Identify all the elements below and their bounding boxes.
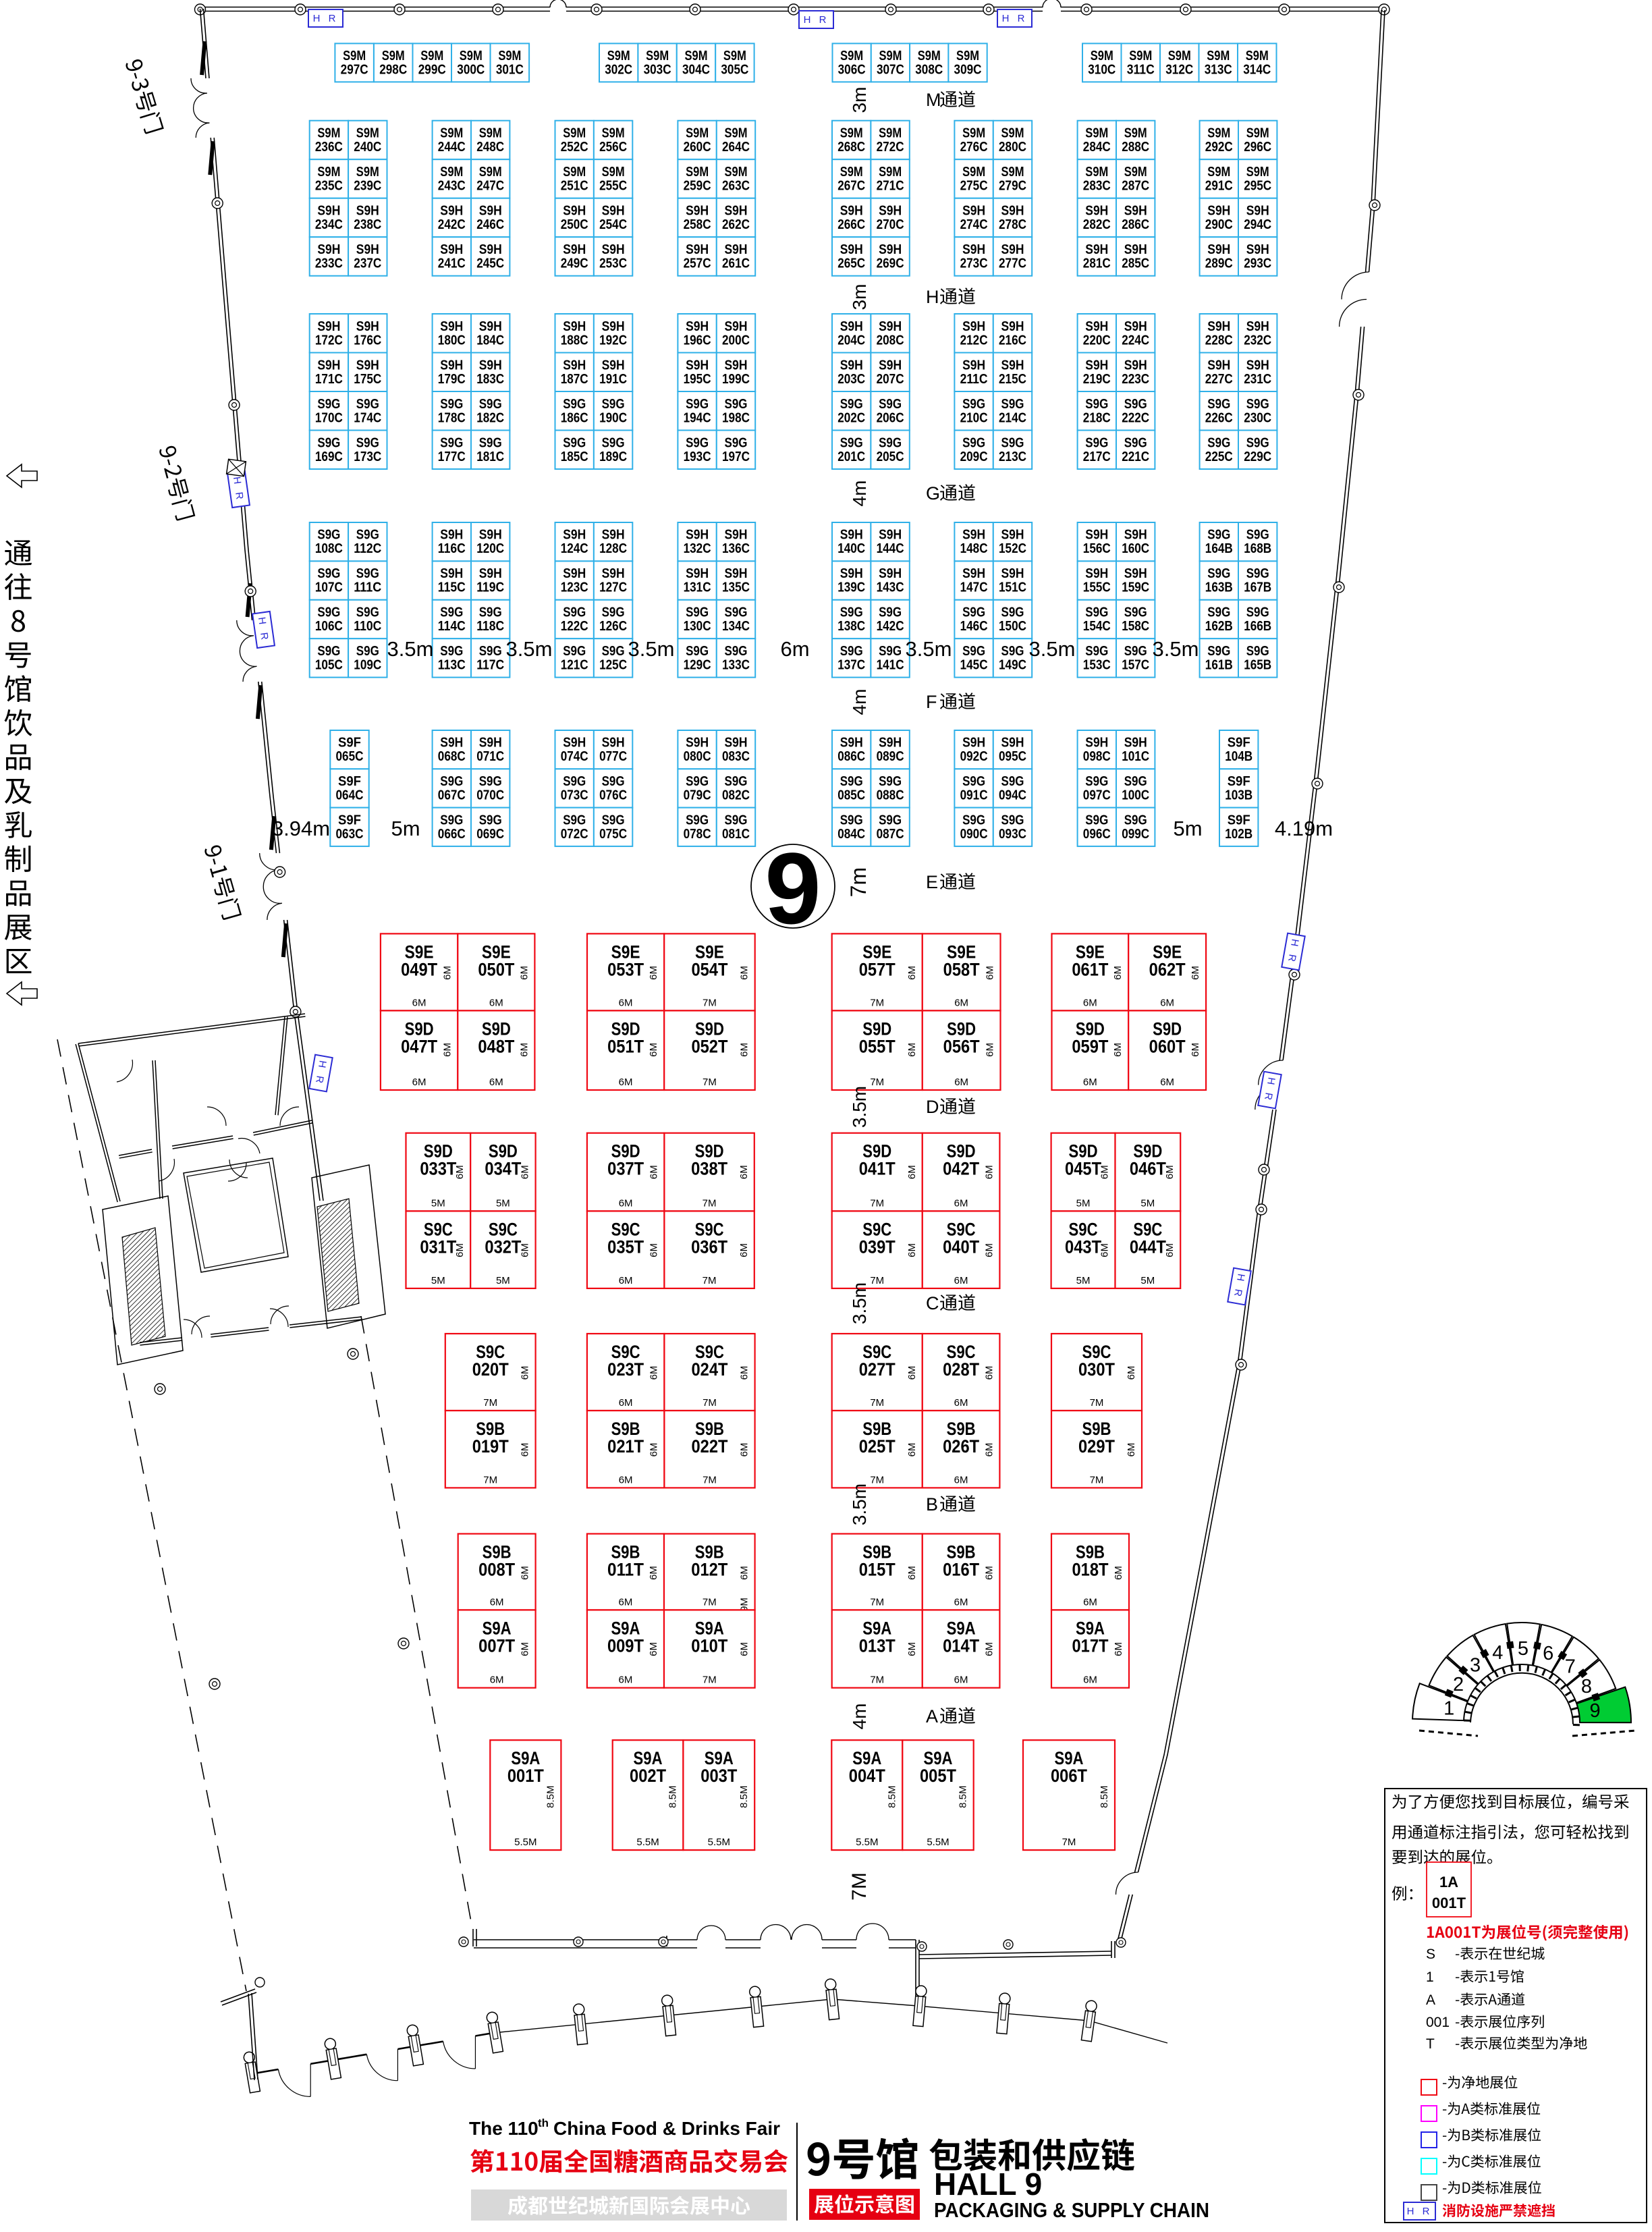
svg-text:233C: 233C: [315, 256, 343, 271]
svg-text:S9M: S9M: [646, 49, 669, 63]
svg-text:7M: 7M: [1090, 1474, 1104, 1486]
svg-text:7M: 7M: [870, 997, 884, 1008]
svg-text:056T: 056T: [943, 1036, 980, 1056]
svg-text:297C: 297C: [341, 62, 368, 77]
svg-text:173C: 173C: [354, 450, 381, 464]
svg-text:S9H: S9H: [1085, 736, 1108, 751]
svg-text:S9G: S9G: [479, 397, 502, 412]
svg-text:S9H: S9H: [356, 242, 379, 257]
svg-text:S9H: S9H: [1246, 319, 1269, 334]
svg-text:H R: H R: [804, 14, 829, 26]
svg-text:8.5M: 8.5M: [1099, 1786, 1110, 1808]
svg-text:S9M: S9M: [602, 165, 625, 180]
svg-text:6M: 6M: [1160, 997, 1174, 1008]
svg-text:154C: 154C: [1083, 619, 1111, 634]
svg-text:167B: 167B: [1244, 580, 1271, 595]
svg-text:147C: 147C: [960, 580, 988, 595]
svg-text:243C: 243C: [438, 178, 466, 193]
svg-text:S9G: S9G: [962, 644, 985, 659]
svg-text:S9G: S9G: [879, 397, 902, 412]
svg-text:S9H: S9H: [479, 242, 502, 257]
svg-text:M: M: [926, 90, 941, 110]
svg-text:6M: 6M: [648, 1443, 659, 1457]
svg-text:270C: 270C: [877, 217, 904, 232]
svg-text:109C: 109C: [354, 657, 381, 672]
svg-text:6M: 6M: [1113, 1642, 1124, 1656]
svg-text:S9H: S9H: [879, 736, 902, 751]
svg-text:S9G: S9G: [686, 397, 709, 412]
svg-text:038T: 038T: [691, 1159, 727, 1179]
svg-text:4m: 4m: [849, 1704, 870, 1730]
svg-text:6M: 6M: [739, 1566, 750, 1580]
svg-text:S9M: S9M: [1129, 49, 1152, 63]
svg-text:6M: 6M: [1190, 1043, 1201, 1057]
svg-text:6M: 6M: [738, 1165, 750, 1179]
svg-text:235C: 235C: [315, 178, 343, 193]
svg-text:S9G: S9G: [602, 774, 625, 789]
svg-text:6M: 6M: [954, 1275, 968, 1286]
svg-text:S9M: S9M: [879, 165, 902, 180]
svg-text:5m: 5m: [1173, 817, 1202, 840]
svg-text:S9G: S9G: [1246, 528, 1269, 543]
svg-text:6M: 6M: [619, 1275, 633, 1286]
svg-text:S9H: S9H: [563, 203, 586, 218]
svg-text:191C: 191C: [599, 372, 627, 387]
svg-text:S9G: S9G: [440, 774, 463, 789]
svg-text:197C: 197C: [722, 450, 750, 464]
svg-text:S9H: S9H: [440, 736, 463, 751]
svg-text:125C: 125C: [599, 657, 627, 672]
svg-text:242C: 242C: [438, 217, 466, 232]
svg-text:266C: 266C: [837, 217, 865, 232]
svg-text:238C: 238C: [354, 217, 381, 232]
svg-text:045T: 045T: [1065, 1159, 1101, 1179]
svg-text:5: 5: [1518, 1638, 1529, 1660]
svg-text:220C: 220C: [1083, 333, 1111, 348]
svg-text:S9G: S9G: [1207, 435, 1230, 450]
svg-text:S9M: S9M: [840, 49, 863, 63]
svg-text:S9G: S9G: [479, 605, 502, 620]
svg-text:7M: 7M: [870, 1675, 884, 1686]
svg-text:The 110: The 110: [469, 2118, 539, 2139]
svg-text:170C: 170C: [315, 410, 343, 425]
svg-text:159C: 159C: [1122, 580, 1149, 595]
svg-text:217C: 217C: [1083, 450, 1111, 464]
svg-text:174C: 174C: [354, 410, 381, 425]
svg-text:255C: 255C: [599, 178, 627, 193]
svg-text:H R: H R: [1002, 13, 1028, 24]
svg-text:092C: 092C: [960, 749, 988, 764]
svg-text:278C: 278C: [999, 217, 1026, 232]
svg-text:S9G: S9G: [840, 774, 863, 789]
svg-text:051T: 051T: [607, 1036, 644, 1056]
svg-text:276C: 276C: [960, 140, 988, 155]
svg-text:S9M: S9M: [918, 49, 941, 63]
svg-text:S9H: S9H: [602, 319, 625, 334]
svg-text:5.5M: 5.5M: [636, 1836, 659, 1848]
svg-text:S9G: S9G: [1207, 528, 1230, 543]
svg-text:120C: 120C: [476, 541, 504, 556]
svg-text:291C: 291C: [1205, 178, 1233, 193]
svg-text:128C: 128C: [599, 541, 627, 556]
svg-text:118C: 118C: [476, 619, 504, 634]
svg-text:S9H: S9H: [725, 242, 748, 257]
svg-text:6M: 6M: [954, 1596, 968, 1608]
svg-text:309C: 309C: [954, 62, 982, 77]
svg-text:S9G: S9G: [1001, 397, 1024, 412]
svg-text:6M: 6M: [1099, 1243, 1111, 1257]
svg-text:6M: 6M: [648, 966, 659, 980]
svg-text:288C: 288C: [1122, 140, 1149, 155]
svg-text:S9H: S9H: [563, 736, 586, 751]
svg-text:010T: 010T: [691, 1635, 727, 1656]
svg-text:S9M: S9M: [1207, 49, 1230, 63]
svg-text:S9H: S9H: [879, 566, 902, 581]
svg-text:S9G: S9G: [879, 813, 902, 827]
svg-text:293C: 293C: [1244, 256, 1271, 271]
svg-text:2: 2: [1453, 1674, 1464, 1695]
svg-text:S: S: [1426, 1947, 1435, 1962]
svg-text:S9M: S9M: [1001, 126, 1024, 140]
svg-text:124C: 124C: [561, 541, 588, 556]
svg-text:101C: 101C: [1122, 749, 1149, 764]
svg-text:176C: 176C: [354, 333, 381, 348]
svg-text:S9G: S9G: [1124, 397, 1147, 412]
svg-text:5.5M: 5.5M: [927, 1836, 949, 1848]
svg-text:6M: 6M: [954, 997, 968, 1008]
svg-text:S9M: S9M: [1124, 165, 1147, 180]
svg-text:7M: 7M: [1062, 1836, 1076, 1848]
svg-text:188C: 188C: [561, 333, 588, 348]
svg-text:007T: 007T: [478, 1635, 515, 1656]
svg-text:S9H: S9H: [686, 203, 709, 218]
svg-text:7M: 7M: [703, 1275, 717, 1286]
svg-text:146C: 146C: [960, 619, 988, 634]
svg-text:S9G: S9G: [440, 397, 463, 412]
svg-text:1: 1: [1443, 1697, 1454, 1719]
svg-text:S9F: S9F: [338, 813, 361, 827]
svg-text:6M: 6M: [518, 966, 530, 980]
svg-text:111C: 111C: [354, 580, 381, 595]
svg-text:104B: 104B: [1225, 749, 1252, 764]
svg-text:S9H: S9H: [440, 242, 463, 257]
svg-text:205C: 205C: [877, 450, 904, 464]
svg-text:105C: 105C: [315, 657, 343, 672]
svg-text:144C: 144C: [877, 541, 904, 556]
svg-text:6M: 6M: [520, 1642, 531, 1656]
svg-text:152C: 152C: [999, 541, 1026, 556]
svg-text:279C: 279C: [999, 178, 1026, 193]
svg-text:6M: 6M: [520, 1443, 531, 1457]
svg-text:S9H: S9H: [602, 528, 625, 543]
svg-text:S9G: S9G: [686, 435, 709, 450]
svg-text:S9G: S9G: [1207, 644, 1230, 659]
svg-text:6M: 6M: [906, 1165, 918, 1179]
svg-text:098C: 098C: [1083, 749, 1111, 764]
svg-text:175C: 175C: [354, 372, 381, 387]
svg-text:5m: 5m: [391, 817, 420, 840]
svg-text:132C: 132C: [684, 541, 711, 556]
svg-text:S9H: S9H: [840, 242, 863, 257]
svg-text:S9M: S9M: [479, 126, 502, 140]
svg-text:183C: 183C: [476, 372, 504, 387]
svg-text:119C: 119C: [476, 580, 504, 595]
svg-text:300C: 300C: [457, 62, 485, 77]
svg-text:S9H: S9H: [686, 528, 709, 543]
svg-text:011T: 011T: [607, 1560, 644, 1580]
svg-text:S9G: S9G: [1124, 774, 1147, 789]
svg-text:252C: 252C: [561, 140, 588, 155]
svg-text:115C: 115C: [438, 580, 466, 595]
svg-text:S9G: S9G: [840, 397, 863, 412]
svg-text:S9H: S9H: [479, 358, 502, 373]
svg-text:7M: 7M: [703, 1596, 717, 1608]
svg-text:211C: 211C: [960, 372, 988, 387]
svg-text:S9G: S9G: [479, 813, 502, 827]
svg-text:S9H: S9H: [879, 242, 902, 257]
svg-text:6M: 6M: [441, 1043, 453, 1057]
svg-text:095C: 095C: [999, 749, 1026, 764]
svg-text:219C: 219C: [1083, 372, 1111, 387]
svg-text:6M: 6M: [1112, 966, 1124, 980]
svg-text:212C: 212C: [960, 333, 988, 348]
svg-text:6M: 6M: [1083, 1596, 1097, 1608]
svg-text:6M: 6M: [1164, 1165, 1176, 1179]
svg-text:204C: 204C: [837, 333, 865, 348]
svg-text:065C: 065C: [336, 749, 364, 764]
svg-text:150C: 150C: [999, 619, 1026, 634]
svg-text:044T: 044T: [1130, 1236, 1166, 1257]
svg-text:6M: 6M: [518, 1043, 530, 1057]
svg-text:S9G: S9G: [356, 566, 379, 581]
svg-text:S9G: S9G: [602, 644, 625, 659]
svg-text:283C: 283C: [1083, 178, 1111, 193]
svg-text:S9H: S9H: [479, 319, 502, 334]
svg-text:6M: 6M: [1113, 1566, 1124, 1580]
svg-text:S9H: S9H: [1124, 736, 1147, 751]
svg-text:134C: 134C: [722, 619, 750, 634]
svg-text:082C: 082C: [722, 788, 750, 802]
svg-text:3.5m: 3.5m: [906, 637, 952, 661]
svg-text:203C: 203C: [837, 372, 865, 387]
svg-text:S9H: S9H: [356, 203, 379, 218]
svg-text:6M: 6M: [739, 1366, 750, 1380]
svg-text:S9H: S9H: [1001, 203, 1024, 218]
svg-text:281C: 281C: [1083, 256, 1111, 271]
svg-text:184C: 184C: [476, 333, 504, 348]
svg-text:6M: 6M: [619, 1474, 633, 1486]
svg-text:S9H: S9H: [1085, 203, 1108, 218]
svg-text:E: E: [926, 872, 938, 892]
svg-text:264C: 264C: [722, 140, 750, 155]
svg-text:7M: 7M: [483, 1397, 497, 1409]
svg-text:063C: 063C: [336, 827, 364, 842]
svg-text:1: 1: [1426, 1969, 1434, 1985]
svg-text:032T: 032T: [485, 1236, 521, 1257]
svg-text:250C: 250C: [561, 217, 588, 232]
svg-text:249C: 249C: [561, 256, 588, 271]
svg-text:S9H: S9H: [479, 736, 502, 751]
svg-text:299C: 299C: [418, 62, 446, 77]
svg-text:A: A: [926, 1706, 938, 1726]
svg-text:075C: 075C: [599, 827, 627, 842]
svg-text:088C: 088C: [877, 788, 904, 802]
svg-text:089C: 089C: [877, 749, 904, 764]
svg-text:S9G: S9G: [479, 774, 502, 789]
svg-text:292C: 292C: [1205, 140, 1233, 155]
svg-text:080C: 080C: [684, 749, 711, 764]
svg-text:7M: 7M: [703, 1077, 717, 1088]
svg-text:S9G: S9G: [1207, 566, 1230, 581]
svg-text:S9F: S9F: [1228, 813, 1250, 827]
svg-text:116C: 116C: [438, 541, 466, 556]
svg-text:005T: 005T: [920, 1766, 956, 1786]
svg-text:6M: 6M: [739, 1642, 750, 1656]
svg-text:6M: 6M: [906, 1243, 918, 1257]
svg-text:127C: 127C: [599, 580, 627, 595]
svg-text:3m: 3m: [849, 87, 870, 113]
svg-text:256C: 256C: [599, 140, 627, 155]
svg-text:310C: 310C: [1088, 62, 1116, 77]
svg-text:285C: 285C: [1122, 256, 1149, 271]
svg-text:S9M: S9M: [723, 49, 746, 63]
svg-text:015T: 015T: [859, 1560, 896, 1580]
svg-text:035T: 035T: [607, 1236, 644, 1257]
svg-text:5M: 5M: [1076, 1275, 1091, 1286]
svg-text:036T: 036T: [691, 1236, 727, 1257]
svg-text:222C: 222C: [1122, 410, 1149, 425]
svg-text:041T: 041T: [859, 1159, 896, 1179]
svg-text:S9H: S9H: [440, 358, 463, 373]
svg-text:S9H: S9H: [1124, 566, 1147, 581]
svg-text:168B: 168B: [1244, 541, 1271, 556]
svg-text:S9H: S9H: [686, 566, 709, 581]
svg-text:S9M: S9M: [356, 126, 379, 140]
svg-text:042T: 042T: [943, 1159, 979, 1179]
svg-text:163B: 163B: [1205, 580, 1233, 595]
svg-text:S9H: S9H: [962, 528, 985, 543]
svg-text:S9G: S9G: [962, 774, 985, 789]
svg-text:017T: 017T: [1072, 1635, 1109, 1656]
svg-text:7M: 7M: [870, 1474, 884, 1486]
svg-text:S9H: S9H: [440, 203, 463, 218]
svg-text:S9H: S9H: [686, 358, 709, 373]
svg-text:S9G: S9G: [317, 435, 340, 450]
svg-text:195C: 195C: [684, 372, 711, 387]
svg-text:S9M: S9M: [317, 165, 340, 180]
svg-text:S9G: S9G: [1207, 397, 1230, 412]
svg-text:229C: 229C: [1244, 450, 1271, 464]
svg-text:S9M: S9M: [602, 126, 625, 140]
svg-text:5.5M: 5.5M: [708, 1836, 730, 1848]
svg-text:S9H: S9H: [686, 242, 709, 257]
svg-text:6M: 6M: [619, 1197, 633, 1209]
svg-text:S9G: S9G: [563, 397, 586, 412]
svg-text:298C: 298C: [379, 62, 407, 77]
svg-text:240C: 240C: [354, 140, 381, 155]
svg-text:S9H: S9H: [1085, 319, 1108, 334]
svg-text:076C: 076C: [599, 788, 627, 802]
svg-text:208C: 208C: [877, 333, 904, 348]
svg-text:066C: 066C: [438, 827, 466, 842]
svg-text:289C: 289C: [1205, 256, 1233, 271]
svg-text:S9G: S9G: [440, 605, 463, 620]
svg-text:305C: 305C: [721, 62, 748, 77]
svg-text:S9G: S9G: [686, 774, 709, 789]
svg-text:185C: 185C: [561, 450, 588, 464]
svg-text:S9M: S9M: [1085, 165, 1108, 180]
svg-text:090C: 090C: [960, 827, 988, 842]
svg-text:S9G: S9G: [879, 605, 902, 620]
svg-text:S9G: S9G: [1085, 605, 1108, 620]
svg-text:031T: 031T: [420, 1236, 456, 1257]
svg-text:S9H: S9H: [602, 358, 625, 373]
svg-text:070C: 070C: [476, 788, 504, 802]
svg-text:303C: 303C: [644, 62, 671, 77]
svg-text:110C: 110C: [354, 619, 381, 634]
svg-text:225C: 225C: [1205, 450, 1233, 464]
svg-text:106C: 106C: [315, 619, 343, 634]
svg-text:6M: 6M: [954, 1474, 968, 1486]
svg-text:053T: 053T: [607, 959, 644, 979]
svg-text:6M: 6M: [954, 1077, 968, 1088]
svg-text:S9M: S9M: [725, 126, 748, 140]
svg-text:S9G: S9G: [317, 644, 340, 659]
svg-text:S9G: S9G: [602, 397, 625, 412]
svg-text:S9M: S9M: [317, 126, 340, 140]
svg-text:049T: 049T: [401, 959, 437, 979]
svg-text:6M: 6M: [985, 1043, 996, 1057]
svg-text:S9H: S9H: [725, 736, 748, 751]
svg-text:186C: 186C: [561, 410, 588, 425]
svg-text:027T: 027T: [859, 1359, 896, 1380]
svg-text:S9H: S9H: [725, 319, 748, 334]
svg-text:S9G: S9G: [962, 435, 985, 450]
svg-text:133C: 133C: [722, 657, 750, 672]
svg-text:145C: 145C: [960, 657, 988, 672]
svg-text:6M: 6M: [983, 1566, 995, 1580]
svg-text:194C: 194C: [684, 410, 711, 425]
svg-text:8.5M: 8.5M: [958, 1786, 969, 1808]
svg-text:022T: 022T: [692, 1436, 728, 1457]
svg-text:S9G: S9G: [1246, 605, 1269, 620]
svg-text:6M: 6M: [619, 1596, 633, 1608]
svg-text:A: A: [1426, 1992, 1435, 2008]
svg-text:S9H: S9H: [1001, 358, 1024, 373]
svg-text:003T: 003T: [700, 1766, 737, 1786]
svg-text:S9H: S9H: [1085, 358, 1108, 373]
svg-text:6M: 6M: [520, 1165, 531, 1179]
svg-text:214C: 214C: [999, 410, 1026, 425]
svg-text:085C: 085C: [837, 788, 865, 802]
svg-text:S9H: S9H: [1124, 319, 1147, 334]
svg-text:265C: 265C: [837, 256, 865, 271]
svg-text:S9H: S9H: [879, 358, 902, 373]
svg-text:S9G: S9G: [840, 605, 863, 620]
svg-text:6M: 6M: [954, 1197, 968, 1209]
svg-text:067C: 067C: [438, 788, 466, 802]
svg-text:180C: 180C: [438, 333, 466, 348]
svg-text:201C: 201C: [837, 450, 865, 464]
svg-text:6M: 6M: [739, 1443, 750, 1457]
svg-text:290C: 290C: [1205, 217, 1233, 232]
svg-text:S9H: S9H: [962, 203, 985, 218]
svg-text:139C: 139C: [837, 580, 865, 595]
svg-text:S9G: S9G: [563, 813, 586, 827]
svg-text:D: D: [926, 1097, 939, 1117]
svg-text:S9M: S9M: [1246, 126, 1269, 140]
svg-text:S9H: S9H: [563, 242, 586, 257]
